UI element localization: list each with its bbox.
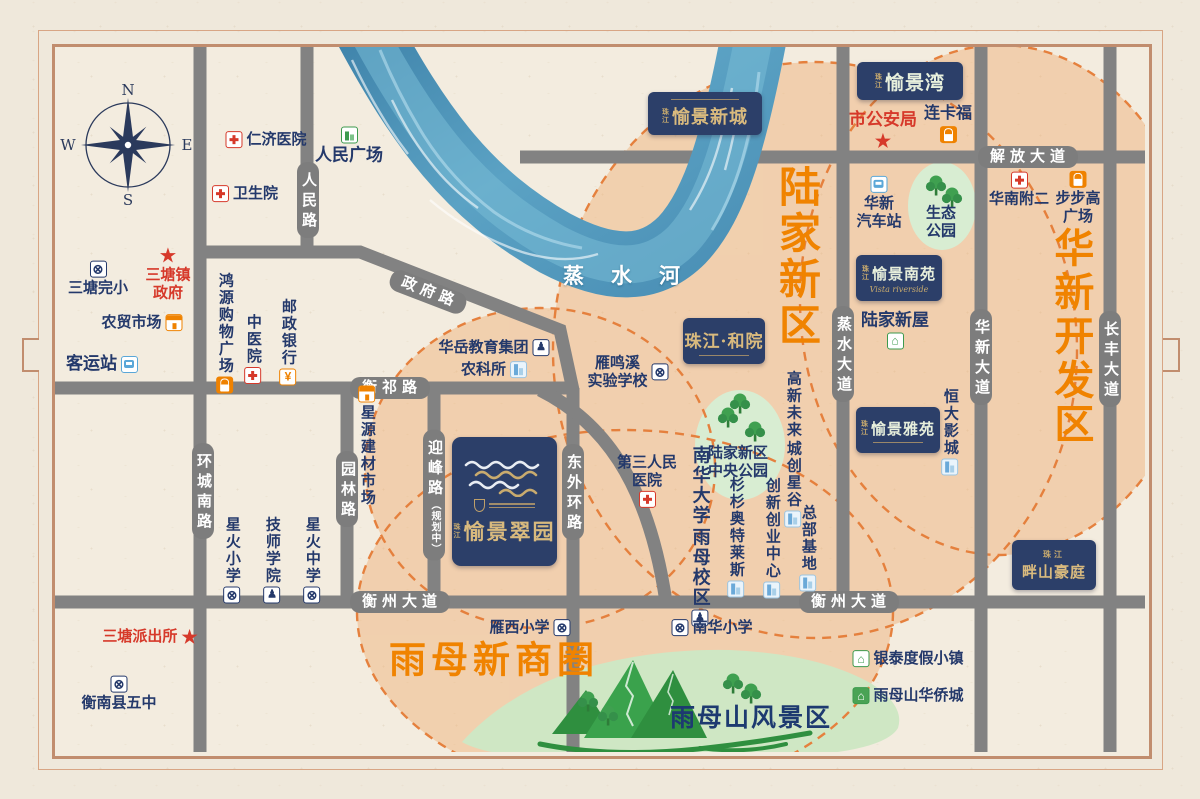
star-icon: ★ <box>875 132 891 150</box>
bus-icon <box>870 176 887 193</box>
landmark-label: 生态公园 <box>926 204 956 239</box>
landmark-label: 鸿源购物广场 <box>216 273 234 375</box>
landmark-yintai-resort-town: ⌂银泰度假小镇 <box>852 650 963 668</box>
school-icon: ⊗ <box>652 364 669 381</box>
landmark-label: 第三人民医院 <box>617 454 677 489</box>
badge-title: 愉景雅苑 <box>871 418 935 439</box>
landmark-label: 三塘镇政府 <box>145 266 190 301</box>
road-label-changfeng-dadao: 长丰大道 <box>1099 311 1121 407</box>
road-name: 长丰大道 <box>1102 321 1119 401</box>
road-label-zhengshui-dadao: 蒸水大道 <box>832 306 854 402</box>
landmark-innovation-entrepreneurship-center: 创新创业中心 <box>763 478 781 599</box>
project-badge-vista-emerald-garden: 珠江愉景翠园 <box>452 437 557 566</box>
edu-icon: ♟ <box>533 340 550 357</box>
landmark-label: 星火小学 <box>223 517 241 585</box>
brand-logo-row <box>474 499 535 512</box>
landmark-santang-primary-school: ⊗三塘完小 <box>68 261 128 298</box>
landmark-renji-hospital: 仁济医院 <box>225 131 306 149</box>
market-icon <box>359 386 376 403</box>
bus-icon <box>121 355 138 372</box>
badge-decor-line <box>699 355 748 356</box>
road-label-dongwai-huan-lu: 东外环路 <box>562 444 584 540</box>
school-icon: ⊗ <box>304 587 321 604</box>
badge-decor-line <box>671 99 739 100</box>
map-poster: N E S W 蒸水河 雨母山风景区 陆家新区华新开发区雨母新商圈人民路政府路衡… <box>0 0 1200 799</box>
landmark-label: 农贸市场 <box>101 314 161 332</box>
badge-title-row: 珠江愉景湾 <box>875 68 945 95</box>
landmark-label: 创新创业中心 <box>763 478 781 580</box>
landmark-label: 衡南县五中 <box>81 695 156 713</box>
landmark-label: 雨母山华侨城 <box>873 687 963 705</box>
badge-brand-prefix: 珠江 <box>875 73 882 88</box>
landmark-label: 星源建材市场 <box>358 405 376 507</box>
building-icon <box>510 362 527 379</box>
landmark-label: 三塘完小 <box>68 280 128 298</box>
compass-e: E <box>182 136 193 154</box>
landmark-nanhua-primary-school: ⊗南华小学 <box>671 619 752 637</box>
road-label-hengzhou-dadao-west: 衡州大道 <box>350 591 450 613</box>
star-icon: ★ <box>160 246 176 264</box>
badge-title: 畔山豪庭 <box>1022 561 1086 582</box>
road-label-huancheng-nan-lu: 环城南路 <box>192 443 214 539</box>
school-icon: ⊗ <box>110 676 127 693</box>
pavilion-icon: ⌂ <box>852 651 869 668</box>
road-name: 人民路 <box>300 172 317 232</box>
landmark-label: 华南附二 <box>989 191 1049 209</box>
landmark-label: 杉杉奥特莱斯 <box>727 477 745 579</box>
road-label-yingfeng-lu: 迎峰路（规划中） <box>423 430 445 561</box>
badge-title-row: 珠江愉景雅苑 <box>861 418 935 439</box>
landmark-label: 邮政银行 <box>279 299 297 367</box>
landmark-technician-college: 技师学院♟ <box>263 517 281 604</box>
compass-n: N <box>121 81 134 99</box>
compass-icon <box>81 98 175 192</box>
river-label: 蒸水河 <box>563 260 707 290</box>
landmark-label: 卫生院 <box>233 185 278 203</box>
road-name: 东外环路 <box>565 454 582 534</box>
building-icon <box>785 511 802 528</box>
badge-title-row: 珠江愉景新城 <box>662 103 748 129</box>
landmark-label: 仁济医院 <box>246 131 306 149</box>
road-label-renmin-lu: 人民路 <box>297 162 319 238</box>
landmark-label: 恒大影城 <box>941 389 959 457</box>
landmark-huayue-education-group: 华岳教育集团♟ <box>438 339 549 357</box>
landmark-tcm-hospital: 中医院 <box>244 314 262 384</box>
landmark-label: 雁鸣溪实验学校 <box>587 354 647 389</box>
road-name: 华新大道 <box>973 319 990 399</box>
landmark-label: 银泰度假小镇 <box>873 650 963 668</box>
vista-elegant-court-badge: 珠江愉景雅苑 <box>856 407 940 453</box>
road-name: 衡州大道 <box>811 593 891 610</box>
pavilion-filled-icon: ⌂ <box>852 688 869 705</box>
landmark-label: 市公安局 <box>849 110 917 130</box>
zone-huaxin-development-zone: 华新开发区 <box>1048 227 1093 447</box>
landmark-label: 客运站 <box>66 354 117 374</box>
hospital-icon <box>638 491 655 508</box>
road-name: 衡州大道 <box>362 593 442 610</box>
landmark-yanxi-primary-school: 雁西小学⊗ <box>489 619 570 637</box>
badge-brand-prefix: 珠江 <box>662 108 669 123</box>
badge-title: 愉景新城 <box>672 103 748 129</box>
landmark-label: 三塘派出所 <box>102 628 177 646</box>
prefix-char: 江 <box>875 81 882 89</box>
building-icon <box>942 459 959 476</box>
landmark-postal-savings-bank: 邮政银行¥ <box>279 299 297 386</box>
landmark-xinghuo-primary-school: 星火小学⊗ <box>223 517 241 604</box>
badge-title: 珠江·和院 <box>685 327 764 352</box>
prefix-char: 江 <box>862 273 869 281</box>
vista-bay-badge: 珠江愉景湾 <box>857 62 963 100</box>
edu-icon: ♟ <box>264 587 281 604</box>
school-icon: ⊗ <box>671 620 688 637</box>
brand-shield-icon <box>474 499 485 512</box>
landmark-label: 陆家新屋 <box>861 310 929 330</box>
landmark-hongyuan-shopping-plaza: 鸿源购物广场 <box>216 273 234 394</box>
badge-decor-line <box>873 442 923 443</box>
landmark-label: 星火中学 <box>303 517 321 585</box>
prefix-char: 江 <box>861 428 868 436</box>
bag-icon <box>1069 171 1086 188</box>
badge-title-row: 珠江愉景翠园 <box>454 516 556 546</box>
road-label-yuanlin-lu: 园林路 <box>336 451 358 527</box>
zhujiang-heyuan-badge: 珠江·和院 <box>683 318 765 364</box>
hospital-icon <box>245 367 262 384</box>
landmark-label: 人民广场 <box>315 145 383 165</box>
building-icon <box>728 581 745 598</box>
school-icon: ⊗ <box>554 620 571 637</box>
road-name-note: （规划中） <box>429 500 440 555</box>
bank-icon: ¥ <box>280 369 297 386</box>
landmark-eco-park-label: 生态公园 <box>926 204 956 239</box>
landmark-label: 步步高广场 <box>1055 190 1100 225</box>
badge-title: 愉景南苑 <box>872 263 936 284</box>
badge-title-row: 珠江·和院 <box>685 327 764 352</box>
badge-title-row: 畔山豪庭 <box>1022 561 1086 582</box>
building-icon <box>800 575 817 592</box>
badge-title: 愉景湾 <box>885 68 945 95</box>
landmark-label: 技师学院 <box>263 517 281 585</box>
label-column: 雨母校区 <box>689 528 710 608</box>
badge-subtitle: Vista riverside <box>870 285 929 294</box>
road-name: 蒸水大道 <box>835 316 852 396</box>
hospital-icon <box>212 186 229 203</box>
badge-title-row: 珠江愉景南苑 <box>862 263 936 284</box>
landmark-label: 华新汽车站 <box>856 195 901 230</box>
landmark-lujia-xinwu: 陆家新屋⌂ <box>861 310 929 349</box>
badge-brand-prefix: 珠江 <box>861 420 868 435</box>
landmark-yumushan-overseas-chinese-town: ⌂雨母山华侨城 <box>852 687 963 705</box>
road-label-hengzhou-dadao-east: 衡州大道 <box>799 591 899 613</box>
vista-new-city-badge: 珠江愉景新城 <box>648 92 762 135</box>
pavilion-icon: ⌂ <box>887 333 904 350</box>
landmark-label: 中医院 <box>244 314 262 365</box>
zone-lujia-new-district: 陆家新区 <box>773 165 820 349</box>
landmark-lujia-central-park-label: 陆家新区中央公园 <box>708 444 768 479</box>
hospital-icon <box>1010 172 1027 189</box>
landmark-hengda-cinema: 恒大影城 <box>941 389 959 476</box>
hospital-icon <box>225 132 242 149</box>
road-name: 环城南路 <box>195 453 212 533</box>
bag-icon <box>939 126 956 143</box>
zone-yumu-new-business-circle: 雨母新商圈 <box>389 639 599 680</box>
frame-tab-right <box>1163 338 1180 372</box>
school-icon: ⊗ <box>224 587 241 604</box>
school-icon: ⊗ <box>89 261 106 278</box>
market-icon <box>166 315 183 332</box>
label-column: 城创星谷 <box>784 441 802 509</box>
prefix-char: 江 <box>454 531 461 539</box>
label-column: 高新未来 <box>784 371 802 439</box>
bag-icon <box>217 377 234 394</box>
landmark-xingyuan-building-materials-market: 星源建材市场 <box>358 386 376 507</box>
landmark-label: 雁西小学 <box>489 619 549 637</box>
prefix-char: 江 <box>662 116 669 124</box>
banshan-haoting-badge: 珠江畔山豪庭 <box>1012 540 1096 590</box>
landmark-nongmao-market: 农贸市场 <box>101 314 182 332</box>
compass-s: S <box>123 191 133 209</box>
building-green-icon <box>341 126 358 143</box>
road-label-huaxin-dadao: 华新大道 <box>970 309 992 405</box>
road-name: 园林路 <box>339 461 356 521</box>
badge-brand-prefix: 珠江 <box>454 523 461 538</box>
landmark-label: 华岳教育集团 <box>438 339 528 357</box>
landmark-yanmingxi-experimental-school: 雁鸣溪实验学校⊗ <box>587 354 668 389</box>
badge-title: 愉景翠园 <box>464 516 556 546</box>
compass-w: W <box>60 136 75 154</box>
frame-tab-left <box>22 338 39 372</box>
road-name: 迎峰路 <box>426 440 443 500</box>
road-label-jiefang-dadao: 解放大道 <box>978 146 1078 168</box>
landmark-huanan-affiliated-no2-hospital: 华南附二 <box>989 172 1049 209</box>
yumushan-scenic-area-label: 雨母山风景区 <box>670 698 832 734</box>
badge-brand-prefix: 珠江 <box>1043 549 1065 560</box>
landmark-xinghuo-middle-school: 星火中学⊗ <box>303 517 321 604</box>
building-icon <box>764 582 781 599</box>
landmark-label: 高新未来城创星谷 <box>784 371 802 509</box>
landmark-renmin-square: 人民广场 <box>315 126 383 165</box>
landmark-santang-police-station: 三塘派出所★ <box>102 628 197 646</box>
landmark-huaxin-bus-station: 华新汽车站 <box>856 176 901 230</box>
landmark-bubugao-plaza: 步步高广场 <box>1055 171 1100 225</box>
vista-south-court-badge: 珠江愉景南苑Vista riverside <box>856 255 942 301</box>
landmark-gaoxin-future-city-star-valley: 高新未来城创星谷 <box>784 371 802 528</box>
landmark-third-peoples-hospital: 第三人民医院 <box>617 454 677 508</box>
waves-logo-icon <box>462 457 548 497</box>
star-icon: ★ <box>181 628 197 646</box>
landmark-label: 南华小学 <box>692 619 752 637</box>
landmark-city-public-security-bureau: 市公安局★ <box>849 110 917 150</box>
landmark-liankafu: 连卡福 <box>924 105 972 143</box>
landmark-santang-town-government: ★三塘镇政府 <box>145 246 190 301</box>
landmark-weishengyuan-clinic: 卫生院 <box>212 185 278 203</box>
badge-brand-prefix: 珠江 <box>862 265 869 280</box>
landmark-bus-terminal: 客运站 <box>66 354 138 374</box>
landmark-hengnan-no5-school: ⊗衡南县五中 <box>81 676 156 713</box>
landmark-shanshan-outlets: 杉杉奥特莱斯 <box>727 477 745 598</box>
landmark-label: 连卡福 <box>924 105 972 124</box>
landmark-agri-science-institute: 农科所 <box>461 361 527 379</box>
brand-text-lines <box>489 503 535 508</box>
landmark-label: 陆家新区中央公园 <box>708 444 768 479</box>
road-name: 解放大道 <box>990 148 1070 165</box>
landmark-label: 农科所 <box>461 361 506 379</box>
